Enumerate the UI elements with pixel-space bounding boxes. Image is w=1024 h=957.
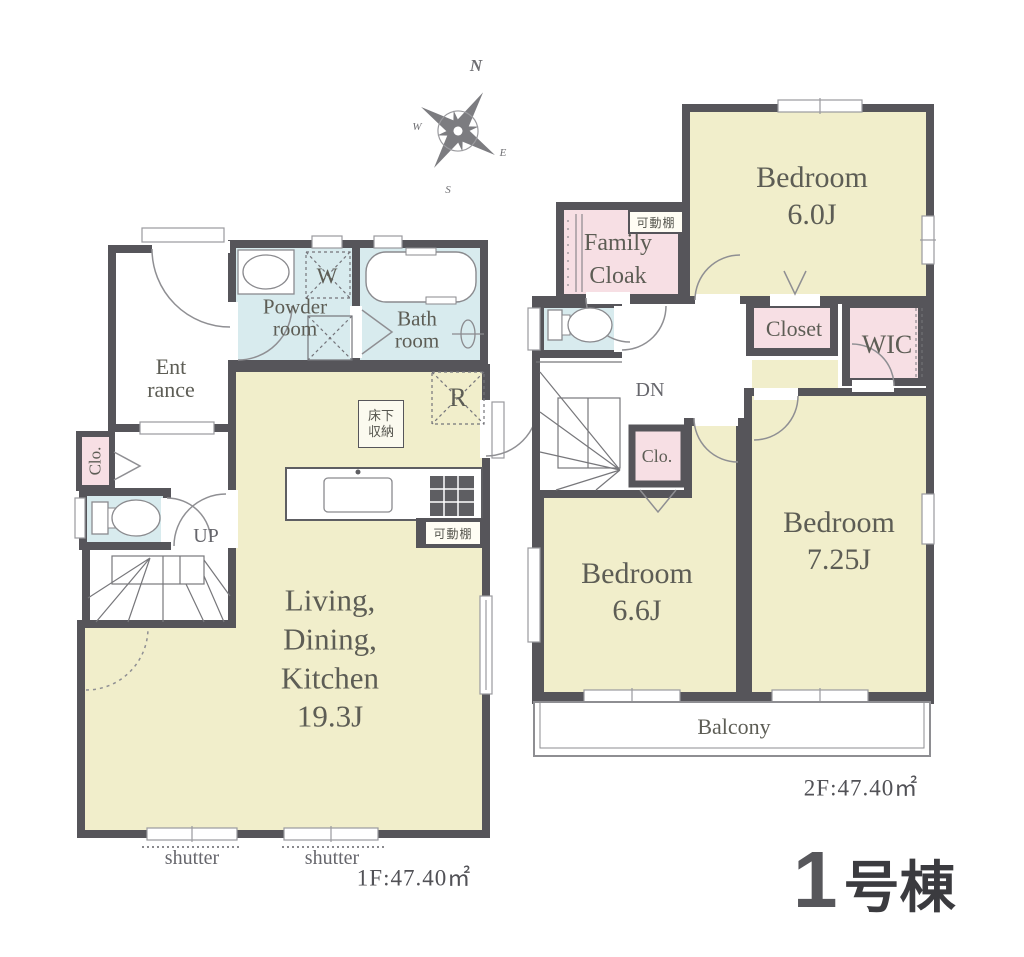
- ldk-label-line3: Kitchen: [281, 663, 379, 694]
- stairs-up-label: UP: [193, 526, 219, 546]
- entrance-label-line2: rance: [147, 379, 195, 401]
- bedroom-725-label-line1: Bedroom: [783, 508, 895, 538]
- toilet-icon: [548, 308, 612, 342]
- shutter-right-label: shutter: [305, 848, 359, 868]
- stairs-dn-label: DN: [636, 380, 665, 400]
- bathtub-icon: [366, 248, 476, 304]
- underfloor-storage-line1: 床下: [368, 408, 394, 424]
- closet-2f-label: Closet: [766, 318, 822, 340]
- bedroom-60-label-line1: Bedroom: [756, 163, 868, 193]
- floor1-stairs: [88, 556, 230, 622]
- bedroom-66-label-line2: 6.6J: [612, 596, 661, 626]
- underfloor-storage-tag: 床下 収納: [358, 400, 404, 448]
- building-suffix: 号棟: [844, 860, 956, 916]
- floor1-area-label: 1F:47.40㎡: [357, 867, 471, 890]
- bath-room-label-line1: Bath: [397, 309, 437, 330]
- compass-south-label: S: [445, 184, 451, 196]
- entrance-label-line1: Ent: [156, 356, 187, 378]
- kitchen-counter-icon: [286, 468, 482, 520]
- compass-east-label: E: [500, 147, 507, 159]
- closet-1f-label: Clo.: [87, 447, 104, 476]
- floor2-area-label: 2F:47.40㎡: [804, 777, 918, 800]
- wic-label: WIC: [862, 332, 913, 358]
- ldk-label-line2: Dining,: [283, 624, 377, 655]
- powder-room-label-line2: room: [273, 319, 317, 340]
- ldk-label-line1: Living,: [285, 585, 375, 616]
- movable-shelf-1f-tag: 可動棚: [424, 520, 482, 546]
- underfloor-storage-line2: 収納: [368, 424, 394, 440]
- building-name: 1 号棟: [793, 840, 963, 920]
- movable-shelf-2f-tag: 可動棚: [628, 210, 684, 234]
- sink-icon: [238, 250, 294, 294]
- shutter-left-label: shutter: [165, 848, 219, 868]
- floor-plan-drawing: [0, 0, 1024, 957]
- floor2-room-fills: [540, 112, 926, 696]
- bedroom-725-label-line2: 7.25J: [807, 545, 871, 575]
- clo-2f-label: Clo.: [642, 447, 673, 465]
- floor2-stairs: [536, 362, 622, 490]
- compass-west-label: W: [412, 121, 421, 133]
- ldk-label-line4: 19.3J: [297, 701, 363, 732]
- bath-room-label-line2: room: [395, 331, 439, 352]
- toilet-icon: [92, 500, 160, 536]
- compass-north-label: N: [470, 56, 482, 76]
- powder-room-label-line1: Powder: [263, 297, 327, 318]
- washer-label: W: [317, 265, 338, 287]
- family-cloak-label-line2: Cloak: [589, 264, 646, 288]
- floor-plan-page: N W E S Powder room Bath room Ent rance …: [0, 0, 1024, 957]
- building-number: 1: [793, 840, 838, 920]
- refrigerator-label: R: [449, 385, 466, 411]
- balcony-label: Balcony: [697, 716, 770, 738]
- bedroom-60-label-line2: 6.0J: [787, 200, 836, 230]
- stove-icon: [430, 476, 474, 516]
- bedroom-66-label-line1: Bedroom: [581, 559, 693, 589]
- family-cloak-label-line1: Family: [584, 231, 652, 255]
